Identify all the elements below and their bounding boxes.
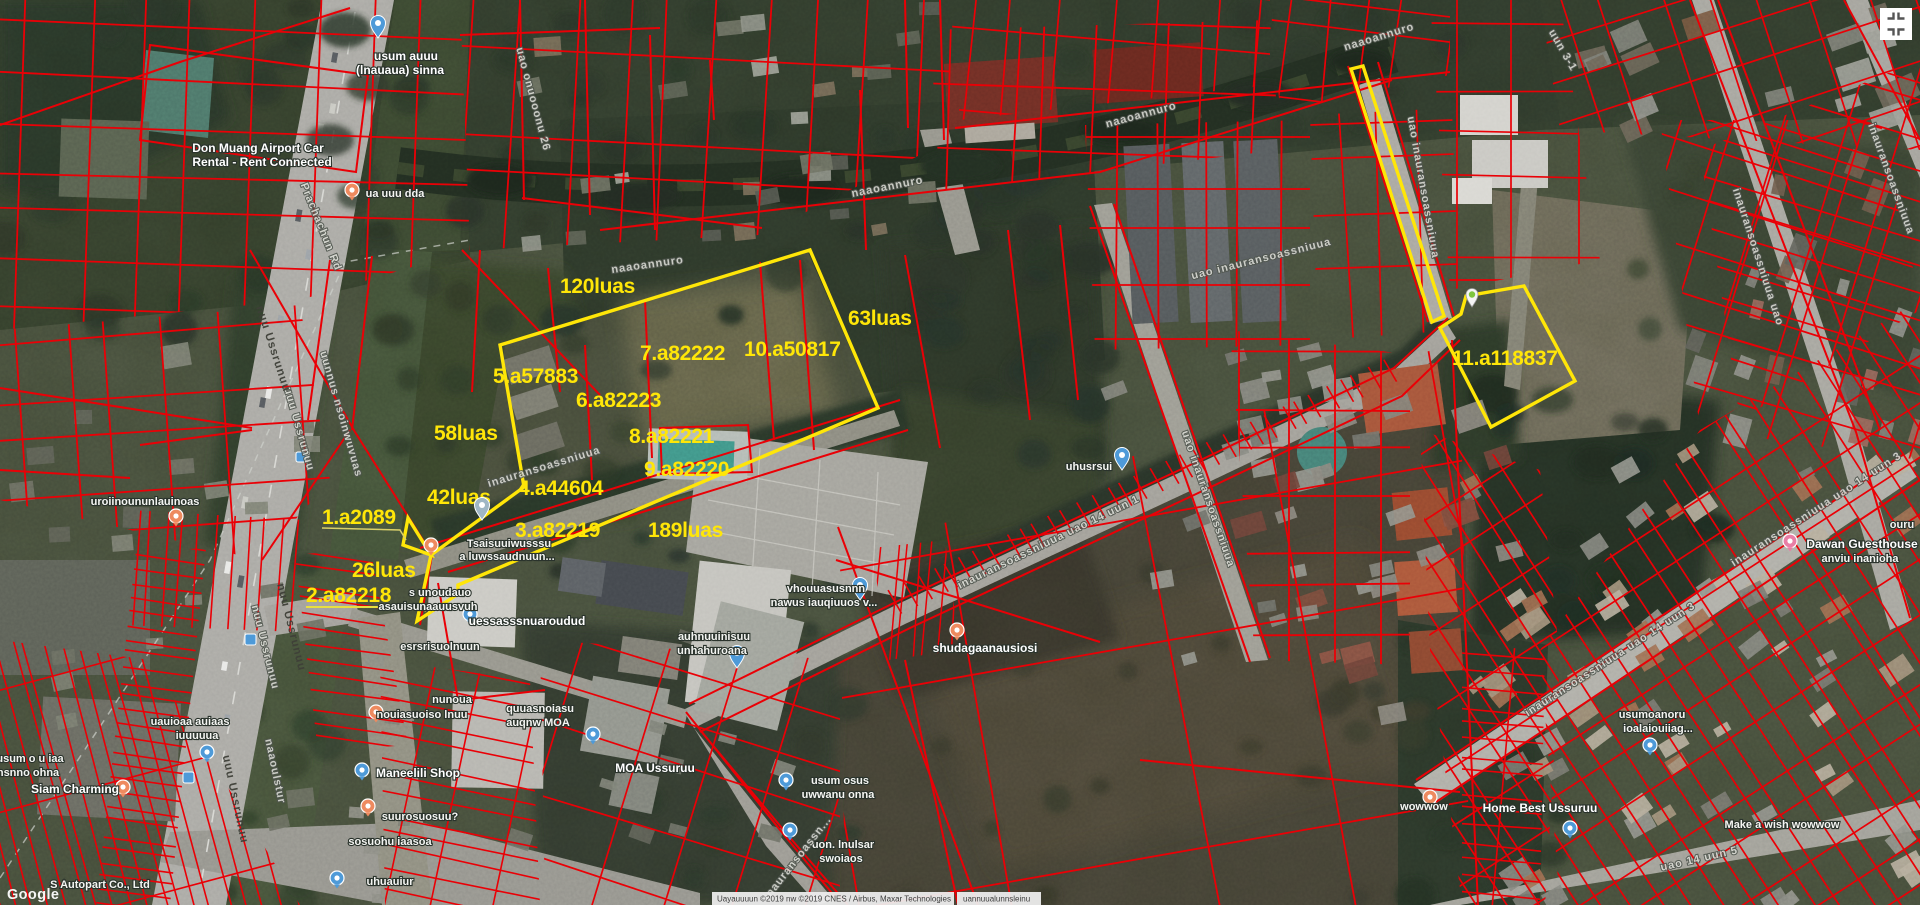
- svg-text:6.a82223: 6.a82223: [576, 389, 661, 412]
- svg-text:uon. lnulsar: uon. lnulsar: [812, 839, 875, 851]
- svg-text:uauioaa auiaas: uauioaa auiaas: [151, 716, 230, 728]
- svg-text:Rental - Rent Connected: Rental - Rent Connected: [192, 155, 331, 169]
- svg-text:Maneelili Shop: Maneelili Shop: [376, 766, 460, 780]
- svg-text:swoiaos: swoiaos: [819, 853, 862, 865]
- svg-text:nawus iauqiuuos v...: nawus iauqiuuos v...: [771, 597, 878, 609]
- svg-text:anviu inanioha: anviu inanioha: [1821, 553, 1899, 565]
- svg-text:uhusrsui: uhusrsui: [1066, 461, 1112, 473]
- svg-text:sosuohu iaasoa: sosuohu iaasoa: [348, 836, 432, 848]
- svg-text:Home Best Ussuruu: Home Best Ussuruu: [1483, 801, 1598, 815]
- svg-text:58luas: 58luas: [434, 422, 498, 445]
- svg-text:usum o u iaa: usum o u iaa: [0, 753, 64, 765]
- svg-text:s unoudauo: s unoudauo: [409, 587, 472, 599]
- svg-text:4.a44604: 4.a44604: [518, 477, 604, 500]
- svg-text:vhouuasusnnn: vhouuasusnnn: [787, 583, 866, 595]
- svg-text:usumoanoru: usumoanoru: [1619, 709, 1686, 721]
- svg-text:a luwssaudnuun...: a luwssaudnuun...: [459, 551, 554, 563]
- svg-text:(lnauaua) sinna: (lnauaua) sinna: [356, 63, 444, 77]
- svg-text:11.a118837: 11.a118837: [1452, 347, 1558, 370]
- svg-text:shudagaanausiosi: shudagaanausiosi: [933, 641, 1038, 655]
- svg-text:Tsaisuuiwusssu: Tsaisuuiwusssu: [467, 538, 551, 550]
- svg-text:63luas: 63luas: [848, 307, 912, 330]
- svg-text:120luas: 120luas: [560, 275, 635, 298]
- svg-text:S Autopart Co., Ltd: S Autopart Co., Ltd: [50, 879, 150, 891]
- svg-text:esrsrisuolnuun: esrsrisuolnuun: [400, 641, 480, 653]
- svg-text:Google: Google: [7, 887, 59, 903]
- svg-text:Siam Charming: Siam Charming: [31, 782, 119, 796]
- svg-text:asauisunaauusvuh: asauisunaauusvuh: [378, 601, 477, 613]
- svg-text:1.a2089: 1.a2089: [322, 506, 396, 529]
- svg-text:suurosuosuu?: suurosuosuu?: [382, 811, 459, 823]
- svg-text:Make a wish wowwow: Make a wish wowwow: [1725, 819, 1840, 831]
- svg-text:unhahuroana: unhahuroana: [677, 645, 748, 657]
- svg-text:uannuualunnsleinu: uannuualunnsleinu: [963, 895, 1030, 904]
- svg-text:10.a50817: 10.a50817: [744, 338, 841, 361]
- svg-text:auhnuuinisuu: auhnuuinisuu: [678, 631, 750, 643]
- svg-text:Dawan Guesthouse: Dawan Guesthouse: [1806, 537, 1918, 551]
- svg-text:189luas: 189luas: [648, 519, 723, 542]
- svg-text:7.a82222: 7.a82222: [640, 342, 725, 365]
- svg-text:ouru: ouru: [1890, 519, 1914, 531]
- svg-text:usum auuu: usum auuu: [374, 49, 438, 63]
- svg-text:MOA Ussuruu: MOA Ussuruu: [615, 761, 695, 775]
- svg-text:uessasssnuaroudud: uessasssnuaroudud: [469, 614, 586, 628]
- svg-text:usum osus: usum osus: [811, 775, 869, 787]
- svg-text:nsnno ohna: nsnno ohna: [0, 767, 60, 779]
- svg-text:5.a57883: 5.a57883: [493, 365, 578, 388]
- svg-text:nouiasuoiso lnuu: nouiasuoiso lnuu: [376, 709, 467, 721]
- svg-text:9.a82220: 9.a82220: [644, 458, 729, 481]
- svg-text:8.a82221: 8.a82221: [629, 425, 715, 448]
- svg-text:uroiinoununlauinoas: uroiinoununlauinoas: [91, 496, 200, 508]
- svg-text:quuasnoiasu: quuasnoiasu: [506, 703, 574, 715]
- svg-text:Uayauuuun ©2019 nw ©2019 CNES: Uayauuuun ©2019 nw ©2019 CNES / Airbus, …: [717, 895, 951, 904]
- svg-text:iuuuuua: iuuuuua: [176, 730, 220, 742]
- svg-text:nunoua: nunoua: [432, 694, 473, 706]
- svg-text:ua uuu dda: ua uuu dda: [366, 188, 426, 200]
- svg-text:Don Muang Airport Car: Don Muang Airport Car: [192, 141, 324, 155]
- svg-text:wowwow: wowwow: [1399, 801, 1448, 813]
- svg-text:uwwanu onna: uwwanu onna: [802, 789, 876, 801]
- svg-text:uhuauiur: uhuauiur: [366, 876, 414, 888]
- svg-text:26luas: 26luas: [352, 559, 416, 582]
- svg-text:ioalaiouiiag...: ioalaiouiiag...: [1623, 723, 1693, 735]
- svg-text:auqnw MOA: auqnw MOA: [506, 717, 570, 729]
